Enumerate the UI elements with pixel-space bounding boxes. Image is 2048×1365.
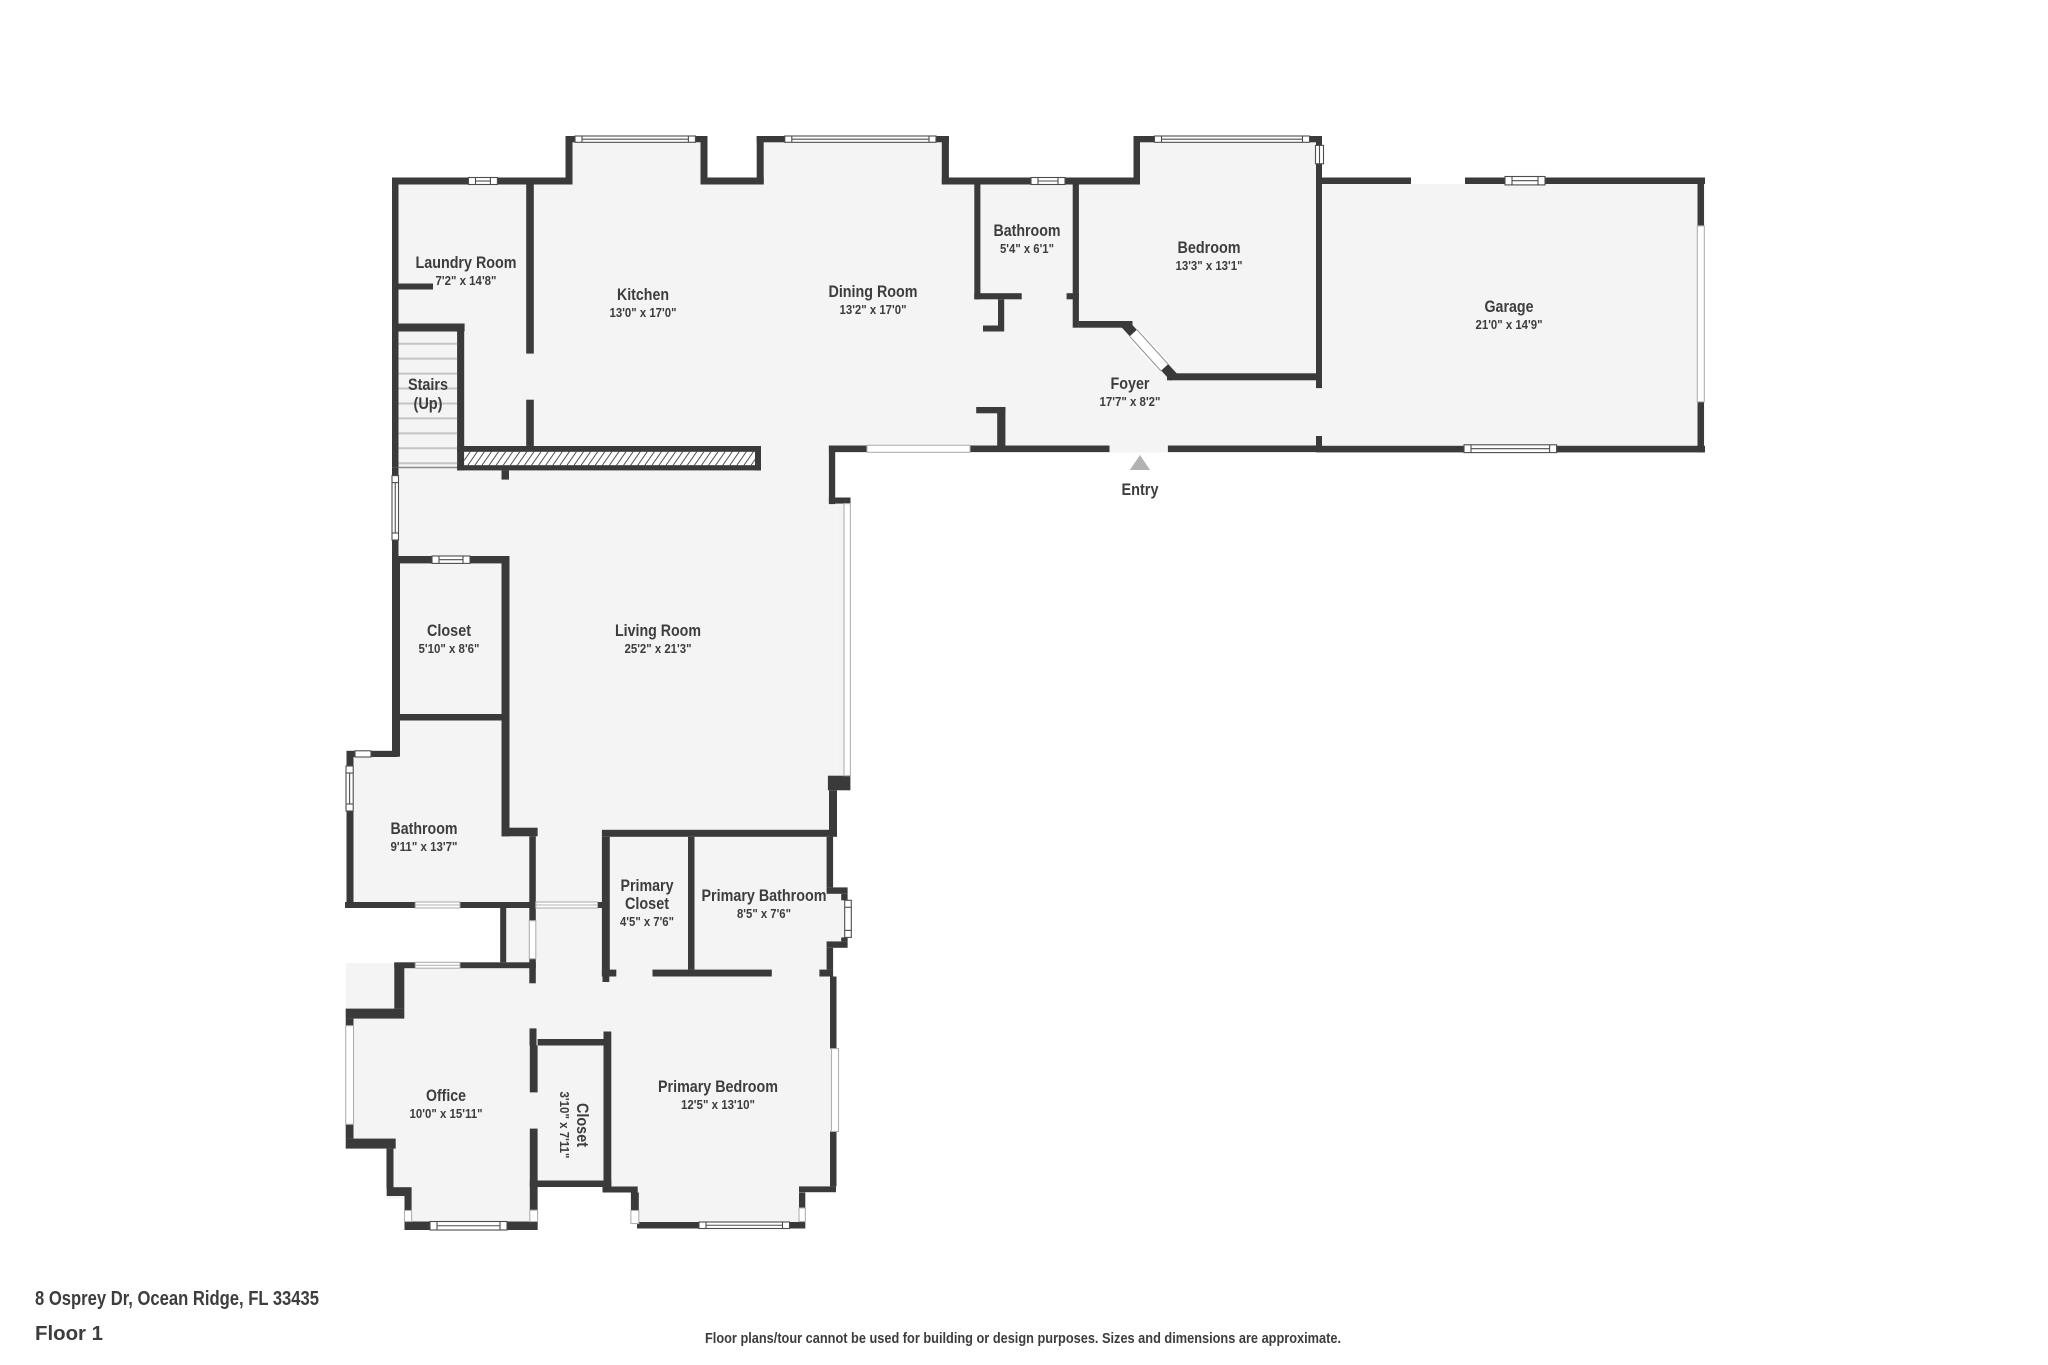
svg-text:Closet: Closet xyxy=(427,621,471,640)
svg-text:Bedroom: Bedroom xyxy=(1178,238,1241,257)
svg-text:Kitchen: Kitchen xyxy=(617,285,669,304)
svg-text:4'5" x 7'6": 4'5" x 7'6" xyxy=(620,914,674,929)
svg-text:5'4" x 6'1": 5'4" x 6'1" xyxy=(1000,241,1054,256)
svg-text:Office: Office xyxy=(426,1086,466,1105)
svg-text:17'7" x 8'2": 17'7" x 8'2" xyxy=(1100,394,1161,409)
svg-text:(Up): (Up) xyxy=(414,394,443,413)
svg-text:Foyer: Foyer xyxy=(1111,374,1150,393)
svg-text:Primary Bedroom: Primary Bedroom xyxy=(658,1077,778,1096)
svg-text:9'11" x 13'7": 9'11" x 13'7" xyxy=(391,839,458,854)
svg-text:8 Osprey Dr, Ocean Ridge, FL 3: 8 Osprey Dr, Ocean Ridge, FL 33435 xyxy=(35,1288,319,1310)
svg-text:Primary: Primary xyxy=(621,876,674,895)
svg-text:21'0" x 14'9": 21'0" x 14'9" xyxy=(1476,317,1543,332)
svg-text:3'10" x 7'11": 3'10" x 7'11" xyxy=(557,1092,572,1159)
svg-text:Laundry Room: Laundry Room xyxy=(416,253,517,272)
svg-text:Garage: Garage xyxy=(1485,297,1534,316)
svg-text:Floor plans/tour cannot be use: Floor plans/tour cannot be used for buil… xyxy=(705,1330,1341,1347)
svg-text:Closet: Closet xyxy=(573,1103,592,1147)
svg-text:8'5" x 7'6": 8'5" x 7'6" xyxy=(737,906,791,921)
svg-text:Entry: Entry xyxy=(1122,480,1159,499)
svg-text:12'5" x 13'10": 12'5" x 13'10" xyxy=(681,1097,755,1112)
svg-text:25'2" x 21'3": 25'2" x 21'3" xyxy=(625,641,692,656)
svg-text:Floor 1: Floor 1 xyxy=(35,1323,103,1345)
svg-text:Primary Bathroom: Primary Bathroom xyxy=(702,886,827,905)
svg-text:Living Room: Living Room xyxy=(615,621,701,640)
svg-text:10'0" x 15'11": 10'0" x 15'11" xyxy=(410,1106,483,1121)
svg-text:13'2" x 17'0": 13'2" x 17'0" xyxy=(840,302,907,317)
svg-text:Bathroom: Bathroom xyxy=(994,221,1061,240)
svg-text:7'2" x 14'8": 7'2" x 14'8" xyxy=(436,273,497,288)
svg-text:5'10" x 8'6": 5'10" x 8'6" xyxy=(419,641,480,656)
svg-text:Stairs: Stairs xyxy=(408,375,448,394)
svg-text:Dining Room: Dining Room xyxy=(829,282,918,301)
svg-text:13'3" x 13'1": 13'3" x 13'1" xyxy=(1176,258,1243,273)
svg-text:Closet: Closet xyxy=(625,894,669,913)
svg-text:Bathroom: Bathroom xyxy=(391,819,458,838)
svg-text:13'0" x 17'0": 13'0" x 17'0" xyxy=(610,305,677,320)
